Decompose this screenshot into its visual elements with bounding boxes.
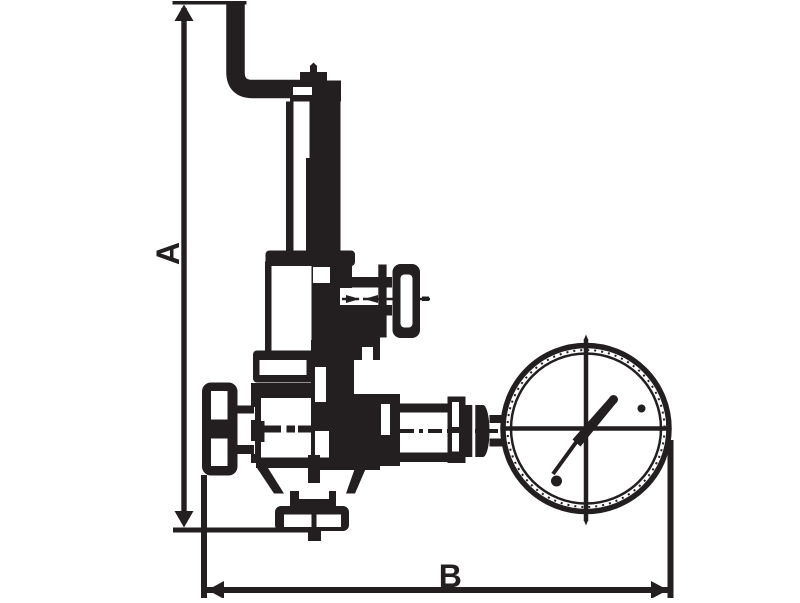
svg-text:A: A — [150, 242, 186, 265]
svg-text:B: B — [439, 558, 462, 594]
